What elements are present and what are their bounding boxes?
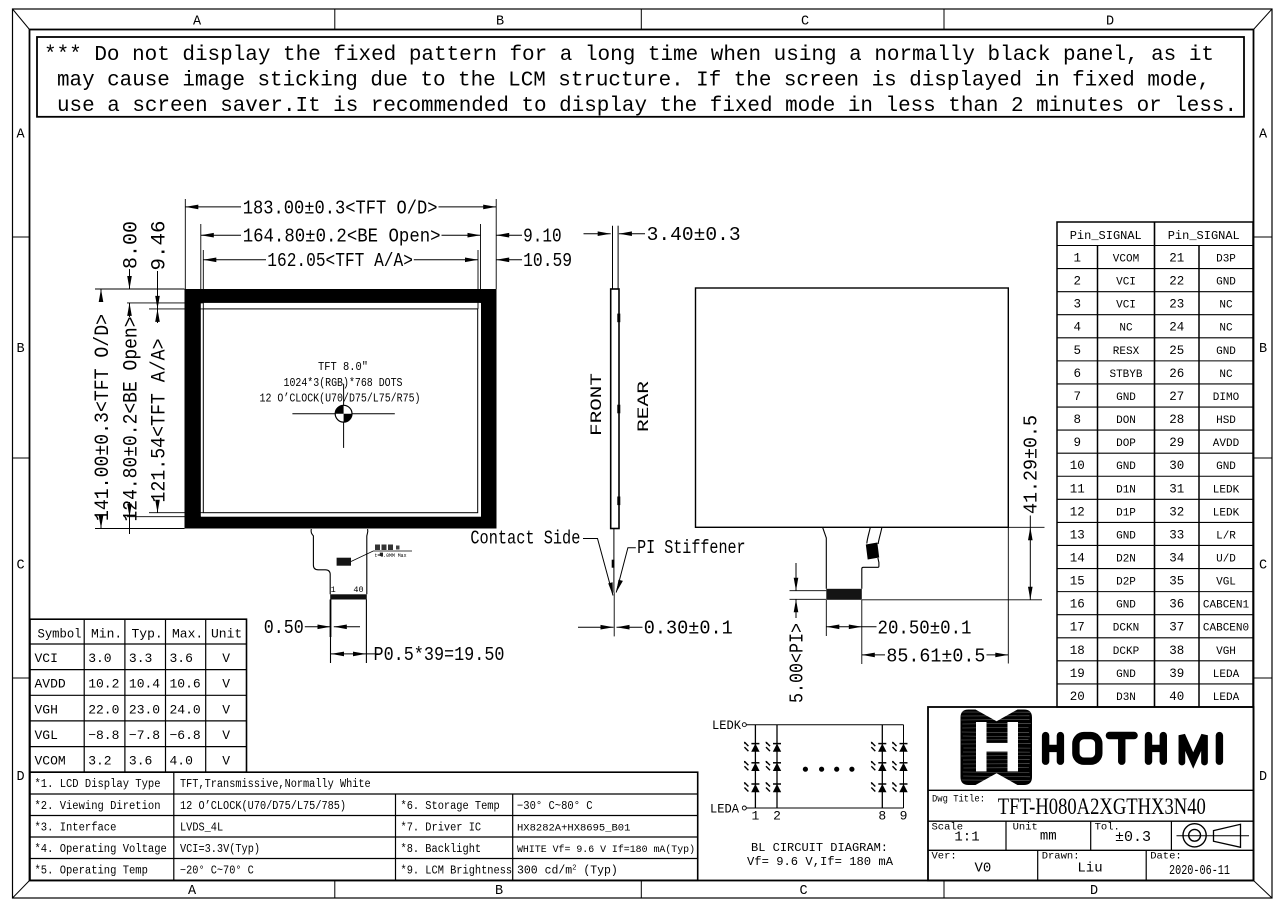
svg-text:−20° C~70° C: −20° C~70° C [180, 865, 254, 878]
svg-text:28: 28 [1169, 413, 1184, 427]
svg-text:AVDD: AVDD [1213, 438, 1240, 450]
svg-text:D2N: D2N [1116, 553, 1136, 565]
svg-text:LEDA: LEDA [710, 803, 739, 817]
svg-text:STBYB: STBYB [1109, 369, 1142, 381]
svg-text:9.46: 9.46 [149, 221, 172, 271]
svg-text:35: 35 [1169, 575, 1184, 589]
svg-text:VCI: VCI [1116, 277, 1136, 289]
svg-text:FRONT: FRONT [588, 373, 606, 436]
svg-text:V: V [222, 702, 230, 717]
svg-text:CABCEN1: CABCEN1 [1203, 600, 1250, 612]
svg-text:REAR: REAR [635, 381, 653, 432]
svg-text:14: 14 [1070, 551, 1085, 565]
svg-text:7: 7 [1073, 390, 1081, 404]
svg-text:41.29±0.5: 41.29±0.5 [1020, 415, 1042, 514]
svg-text:V: V [222, 754, 230, 769]
svg-text:A: A [1259, 128, 1268, 143]
svg-text:3.6: 3.6 [170, 651, 193, 666]
svg-text:24.0: 24.0 [170, 702, 201, 717]
svg-text:GND: GND [1116, 669, 1136, 681]
svg-text:V: V [222, 728, 230, 743]
svg-text:1:1: 1:1 [954, 830, 979, 846]
svg-text:LEDK: LEDK [1213, 507, 1240, 519]
svg-text:B: B [495, 884, 503, 899]
svg-text:GND: GND [1216, 277, 1236, 289]
svg-text:10: 10 [1070, 459, 1085, 473]
svg-text:0.50: 0.50 [264, 617, 304, 639]
svg-text:18: 18 [1070, 644, 1085, 658]
svg-text:NC: NC [1219, 369, 1233, 381]
svg-text:B: B [1259, 342, 1267, 357]
svg-text:−6.8: −6.8 [170, 728, 201, 743]
svg-text:12 O’CLOCK(U70/D75/L75/785): 12 O’CLOCK(U70/D75/L75/785) [180, 800, 346, 813]
svg-text:13: 13 [1070, 528, 1085, 542]
svg-text:10.2: 10.2 [88, 677, 119, 692]
svg-text:may cause image sticking due t: may cause image sticking due to the LCM … [57, 70, 1210, 93]
svg-text:*1. LCD Display Type: *1. LCD Display Type [35, 778, 161, 791]
svg-text:30: 30 [1169, 459, 1184, 473]
svg-text:141.00±0.3<TFT O/D>: 141.00±0.3<TFT O/D> [92, 314, 115, 521]
svg-text:±0.3: ±0.3 [1115, 829, 1151, 846]
svg-text:29: 29 [1169, 436, 1184, 450]
svg-text:*5. Operating Temp: *5. Operating Temp [35, 865, 148, 878]
svg-text:LEDK: LEDK [1213, 484, 1240, 496]
svg-text:VGH: VGH [35, 702, 58, 717]
svg-text:*6. Storage Temp: *6. Storage Temp [401, 800, 500, 813]
svg-text:10.4: 10.4 [129, 677, 160, 692]
svg-text:*9. LCM Brightness: *9. LCM Brightness [401, 865, 513, 878]
svg-text:D: D [1106, 15, 1114, 30]
svg-text:17: 17 [1070, 621, 1085, 635]
svg-text:HSD: HSD [1216, 415, 1236, 427]
svg-text:1: 1 [331, 585, 336, 595]
svg-text:L/R: L/R [1216, 530, 1236, 542]
svg-text:PI Stiffener: PI Stiffener [637, 537, 746, 559]
svg-text:VGL: VGL [1216, 577, 1236, 589]
svg-text:22: 22 [1169, 275, 1184, 289]
svg-text:3.0: 3.0 [88, 651, 111, 666]
svg-text:LEDA: LEDA [1213, 669, 1240, 681]
svg-text:Pin_SIGNAL: Pin_SIGNAL [1070, 229, 1142, 243]
svg-text:31: 31 [1169, 482, 1184, 496]
svg-text:40: 40 [1169, 690, 1184, 704]
svg-text:P0.5*39=19.50: P0.5*39=19.50 [374, 644, 505, 666]
svg-text:20.50±0.1: 20.50±0.1 [878, 617, 972, 639]
svg-text:15: 15 [1070, 575, 1085, 589]
svg-text:124.80±0.2<BE Open>: 124.80±0.2<BE Open> [121, 317, 144, 522]
svg-text:DCKP: DCKP [1113, 646, 1140, 658]
svg-text:25: 25 [1169, 344, 1184, 358]
svg-text:3.3: 3.3 [129, 651, 152, 666]
svg-text:10.59: 10.59 [523, 250, 572, 272]
svg-text:DIMO: DIMO [1213, 392, 1240, 404]
svg-text:V0: V0 [974, 861, 991, 877]
svg-text:2020-06-11: 2020-06-11 [1169, 863, 1230, 879]
svg-text:300 cd/m2 (Typ): 300 cd/m2 (Typ) [517, 865, 618, 878]
svg-text:1: 1 [751, 809, 759, 824]
svg-text:D: D [16, 770, 24, 785]
svg-text:3.6: 3.6 [129, 754, 152, 769]
svg-text:26: 26 [1169, 367, 1184, 381]
svg-text:−8.8: −8.8 [88, 728, 119, 743]
svg-text:Typ.: Typ. [132, 627, 163, 642]
svg-text:9: 9 [900, 809, 908, 824]
svg-text:D1P: D1P [1116, 507, 1136, 519]
svg-text:V: V [222, 677, 230, 692]
svg-text:GND: GND [1116, 392, 1136, 404]
svg-text:LEDK: LEDK [712, 719, 741, 733]
svg-text:36: 36 [1169, 598, 1184, 612]
svg-text:9: 9 [1073, 436, 1081, 450]
svg-text:38: 38 [1169, 644, 1184, 658]
svg-text:NC: NC [1219, 300, 1233, 312]
svg-text:*7. Driver IC: *7. Driver IC [401, 822, 482, 835]
svg-text:B: B [496, 15, 504, 30]
svg-text:27: 27 [1169, 390, 1184, 404]
svg-text:BL CIRCUIT DIAGRAM:: BL CIRCUIT DIAGRAM: [751, 841, 888, 855]
svg-text:5: 5 [1073, 344, 1081, 358]
svg-text:2: 2 [773, 809, 781, 824]
svg-text:GND: GND [1116, 461, 1136, 473]
svg-text:19: 19 [1070, 667, 1085, 681]
svg-text:12 O’CLOCK(U70/D75/L75/R75): 12 O’CLOCK(U70/D75/L75/R75) [260, 392, 421, 406]
svg-text:C: C [16, 559, 24, 574]
svg-text:C: C [801, 15, 809, 30]
svg-text:A: A [16, 128, 25, 143]
svg-text:164.80±0.2<BE Open>: 164.80±0.2<BE Open> [243, 226, 441, 248]
svg-text:2: 2 [1073, 275, 1081, 289]
svg-text:Pin_SIGNAL: Pin_SIGNAL [1168, 229, 1240, 243]
svg-text:3.2: 3.2 [88, 754, 111, 769]
svg-text:t=1.0MM Max: t=1.0MM Max [375, 552, 407, 559]
svg-text:20: 20 [1070, 690, 1085, 704]
svg-text:4: 4 [1073, 321, 1081, 335]
svg-text:121.54<TFT A/A>: 121.54<TFT A/A> [149, 339, 172, 503]
svg-text:AVDD: AVDD [35, 677, 66, 692]
svg-text:−7.8: −7.8 [129, 728, 160, 743]
svg-text:Max.: Max. [172, 627, 203, 642]
svg-text:Date:: Date: [1150, 851, 1182, 863]
svg-text:39: 39 [1169, 667, 1184, 681]
svg-text:8: 8 [1073, 413, 1081, 427]
svg-text:6: 6 [1073, 367, 1081, 381]
svg-text:*** Do not display the fixed p: *** Do not display the fixed pattern for… [44, 44, 1214, 67]
svg-text:D1N: D1N [1116, 484, 1136, 496]
svg-text:23: 23 [1169, 298, 1184, 312]
svg-text:Min.: Min. [91, 627, 122, 642]
svg-text:WHITE Vf= 9.6 V If=180 mA(Typ): WHITE Vf= 9.6 V If=180 mA(Typ) [517, 844, 695, 856]
svg-text:Drawn:: Drawn: [1042, 851, 1080, 863]
svg-text:*8. Backlight: *8. Backlight [401, 843, 482, 856]
svg-text:VCI: VCI [1116, 300, 1136, 312]
svg-text:CABCEN0: CABCEN0 [1203, 623, 1249, 635]
svg-text:3.40±0.3: 3.40±0.3 [647, 224, 741, 246]
svg-text:183.00±0.3<TFT O/D>: 183.00±0.3<TFT O/D> [243, 197, 438, 219]
svg-text:D2P: D2P [1116, 577, 1136, 589]
svg-text:33: 33 [1169, 528, 1184, 542]
svg-text:8: 8 [878, 809, 886, 824]
svg-text:NC: NC [1219, 323, 1233, 335]
svg-text:Dwg Title:: Dwg Title: [932, 794, 985, 806]
svg-text:8.00: 8.00 [121, 221, 144, 269]
svg-text:Unit: Unit [211, 627, 242, 642]
svg-text:D3P: D3P [1216, 254, 1236, 266]
svg-text:Unit: Unit [1013, 822, 1038, 834]
svg-text:GND: GND [1116, 600, 1136, 612]
svg-text:VGL: VGL [35, 728, 58, 743]
svg-text:5.00<PI>: 5.00<PI> [787, 623, 809, 703]
svg-text:23.0: 23.0 [129, 702, 160, 717]
svg-text:B: B [16, 342, 24, 357]
svg-text:0.30±0.1: 0.30±0.1 [644, 618, 733, 640]
svg-text:LVDS_4L: LVDS_4L [180, 822, 223, 835]
svg-text:−30° C~80° C: −30° C~80° C [517, 800, 593, 813]
svg-text:DCKN: DCKN [1113, 623, 1139, 635]
svg-text:Liu: Liu [1077, 861, 1102, 877]
svg-text:Contact Side: Contact Side [470, 528, 580, 550]
svg-text:TFT-H080A2XGTHX3N40: TFT-H080A2XGTHX3N40 [998, 794, 1206, 819]
svg-text:*3. Interface: *3. Interface [35, 822, 117, 835]
svg-text:4.0: 4.0 [170, 754, 193, 769]
svg-text:DOP: DOP [1116, 438, 1136, 450]
svg-text:TFT,Transmissive,Normally Whit: TFT,Transmissive,Normally White [180, 778, 371, 791]
svg-text:GND: GND [1216, 461, 1236, 473]
svg-text:162.05<TFT A/A>: 162.05<TFT A/A> [267, 250, 413, 272]
svg-text:Ver:: Ver: [932, 851, 957, 863]
svg-text:21: 21 [1169, 252, 1184, 266]
svg-text:D3N: D3N [1116, 692, 1136, 704]
svg-text:U/D: U/D [1216, 553, 1236, 565]
svg-text:Symbol: Symbol [38, 627, 82, 642]
svg-text:VCOM: VCOM [1113, 254, 1139, 266]
svg-text:D: D [1090, 884, 1098, 899]
svg-text:12: 12 [1070, 505, 1085, 519]
svg-text:VCI: VCI [35, 651, 58, 666]
svg-text:40: 40 [353, 585, 363, 595]
svg-text:C: C [799, 884, 807, 899]
svg-text:mm: mm [1040, 829, 1057, 845]
svg-text:DON: DON [1116, 415, 1136, 427]
svg-text:RESX: RESX [1113, 346, 1140, 358]
svg-text:A: A [188, 884, 197, 899]
svg-text:22.0: 22.0 [88, 702, 119, 717]
svg-text:9.10: 9.10 [523, 226, 562, 248]
svg-text:85.61±0.5: 85.61±0.5 [886, 645, 985, 667]
svg-text:*4. Operating Voltage: *4. Operating Voltage [35, 843, 167, 856]
svg-text:V: V [222, 651, 230, 666]
svg-text:37: 37 [1169, 621, 1184, 635]
svg-text:32: 32 [1169, 505, 1184, 519]
svg-text:use a screen saver.It is recom: use a screen saver.It is recommended to … [57, 95, 1237, 118]
svg-text:1: 1 [1073, 252, 1081, 266]
svg-text:C: C [1259, 559, 1267, 574]
svg-text:Vf= 9.6 V,If= 180 mA: Vf= 9.6 V,If= 180 mA [747, 855, 894, 869]
svg-text:VCOM: VCOM [35, 754, 66, 769]
svg-text:VCI=3.3V(Typ): VCI=3.3V(Typ) [180, 843, 260, 856]
svg-text:HX8282A+HX8695_B01: HX8282A+HX8695_B01 [517, 824, 630, 835]
svg-text:VGH: VGH [1216, 646, 1236, 658]
svg-text:34: 34 [1169, 551, 1184, 565]
svg-text:*2. Viewing Diretion: *2. Viewing Diretion [35, 800, 161, 813]
svg-text:GND: GND [1116, 530, 1136, 542]
svg-text:A: A [193, 15, 202, 30]
svg-text:10.6: 10.6 [170, 677, 201, 692]
svg-text:11: 11 [1070, 482, 1085, 496]
svg-text:GND: GND [1216, 346, 1236, 358]
svg-text:24: 24 [1169, 321, 1184, 335]
svg-text:3: 3 [1073, 298, 1081, 312]
svg-text:LEDA: LEDA [1213, 692, 1240, 704]
svg-text:NC: NC [1119, 323, 1133, 335]
svg-text:1024*3(RGB)*768 DOTS: 1024*3(RGB)*768 DOTS [284, 376, 403, 390]
svg-text:TFT 8.0″: TFT 8.0″ [318, 360, 368, 374]
svg-text:16: 16 [1070, 598, 1085, 612]
svg-text:D: D [1259, 770, 1267, 785]
